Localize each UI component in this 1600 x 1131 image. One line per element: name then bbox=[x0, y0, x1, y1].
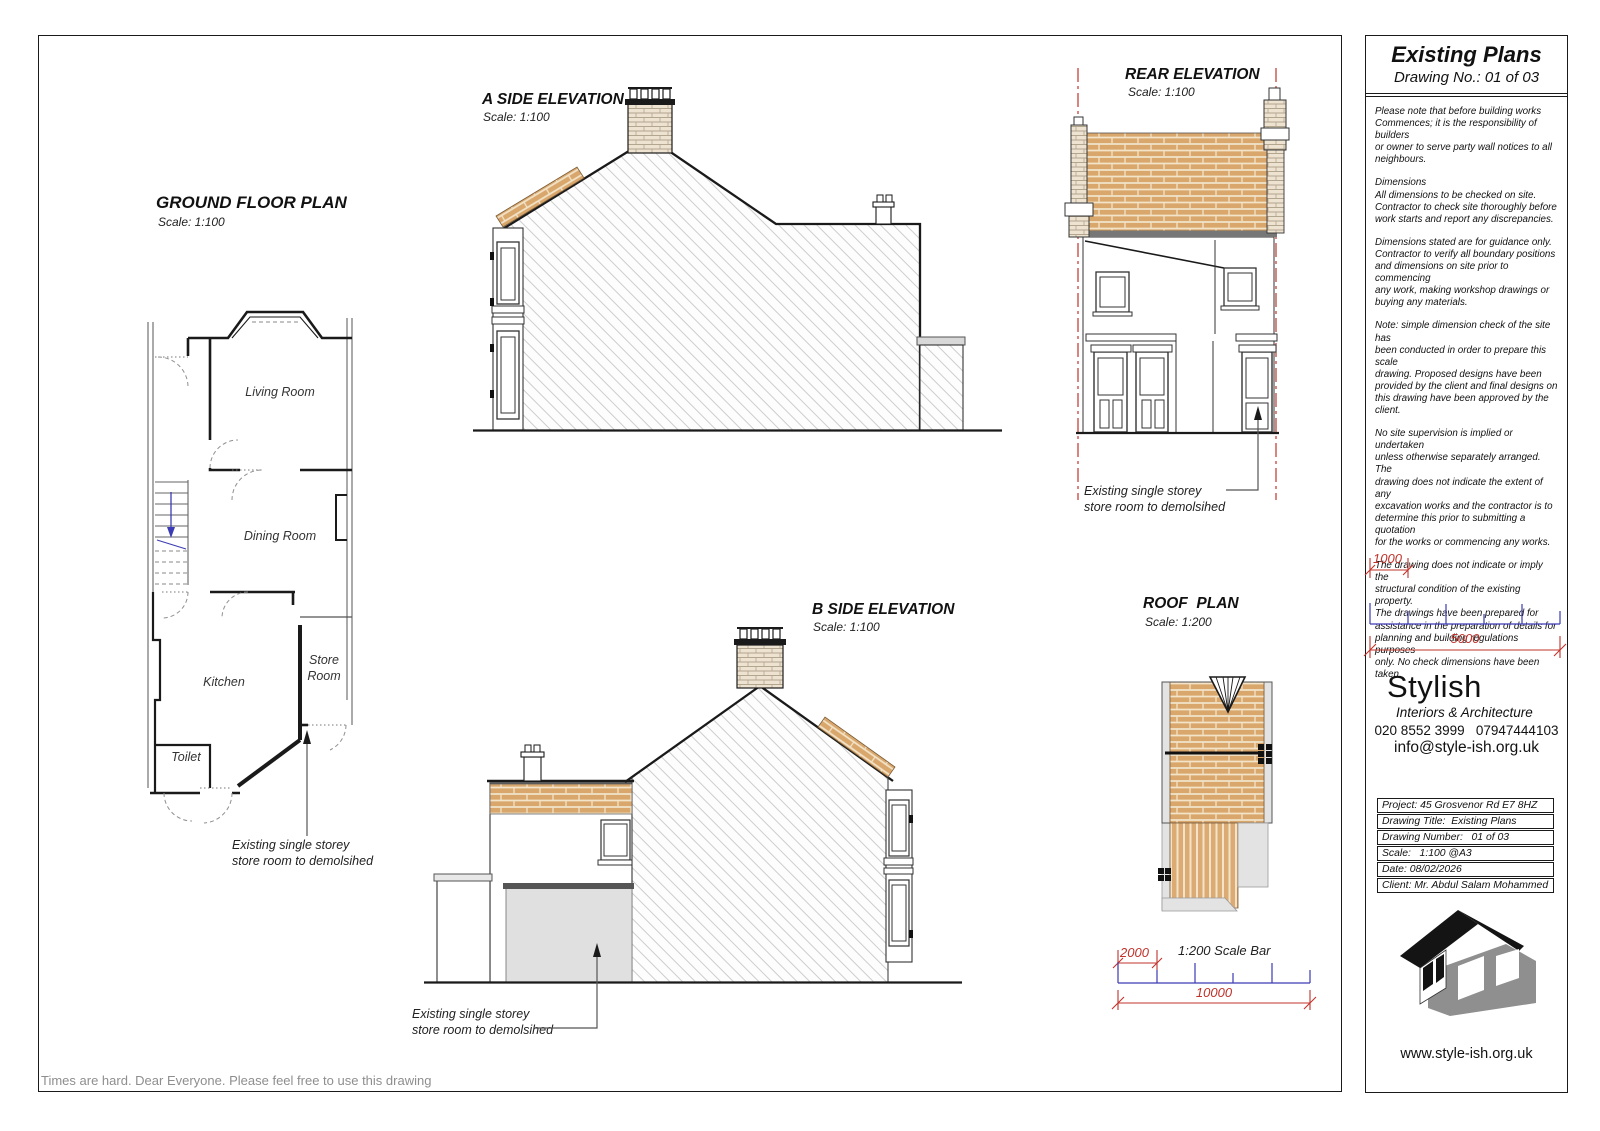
table-row-drawing-number: Drawing Number: 01 of 03 bbox=[1377, 830, 1554, 845]
sheet-drawing-number: Drawing No.: 01 of 03 bbox=[1368, 69, 1565, 86]
note-paragraph: Dimensions stated are for guidance only.… bbox=[1375, 237, 1558, 310]
project-info-table: Project: 45 Grosvenor Rd E7 8HZ Drawing … bbox=[1377, 798, 1554, 894]
table-row-scale: Scale: 1:100 @A3 bbox=[1377, 846, 1554, 861]
table-row-drawing-title: Drawing Title: Existing Plans bbox=[1377, 814, 1554, 829]
panel-title-box: Existing Plans Drawing No.: 01 of 03 bbox=[1366, 36, 1567, 94]
brand-email: info@style-ish.org.uk bbox=[1366, 739, 1567, 757]
brand-tagline: Interiors & Architecture bbox=[1396, 705, 1533, 720]
note-paragraph: The drawing does not indicate or imply t… bbox=[1375, 560, 1558, 681]
table-row-project: Project: 45 Grosvenor Rd E7 8HZ bbox=[1377, 798, 1554, 813]
note-paragraph: No site supervision is implied or undert… bbox=[1375, 428, 1558, 549]
sheet-title: Existing Plans bbox=[1368, 42, 1565, 68]
brand-website: www.style-ish.org.uk bbox=[1366, 1046, 1567, 1062]
note-paragraph: Please note that before building works C… bbox=[1375, 106, 1558, 166]
drawing-sheet-border bbox=[38, 35, 1342, 1092]
general-notes: Please note that before building works C… bbox=[1366, 97, 1567, 681]
note-paragraph: Note: simple dimension check of the site… bbox=[1375, 320, 1558, 417]
brand-name: Stylish bbox=[1387, 669, 1482, 705]
title-block-panel: Existing Plans Drawing No.: 01 of 03 Ple… bbox=[1365, 35, 1568, 1093]
footer-note: Times are hard. Dear Everyone. Please fe… bbox=[41, 1073, 431, 1088]
table-row-client: Client: Mr. Abdul Salam Mohammed bbox=[1377, 878, 1554, 893]
table-row-date: Date: 08/02/2026 bbox=[1377, 862, 1554, 877]
note-paragraph: Dimensions All dimensions to be checked … bbox=[1375, 177, 1558, 225]
brand-phone: 020 8552 3999 07947444103 bbox=[1366, 723, 1567, 738]
company-house-logo bbox=[1392, 902, 1542, 1020]
